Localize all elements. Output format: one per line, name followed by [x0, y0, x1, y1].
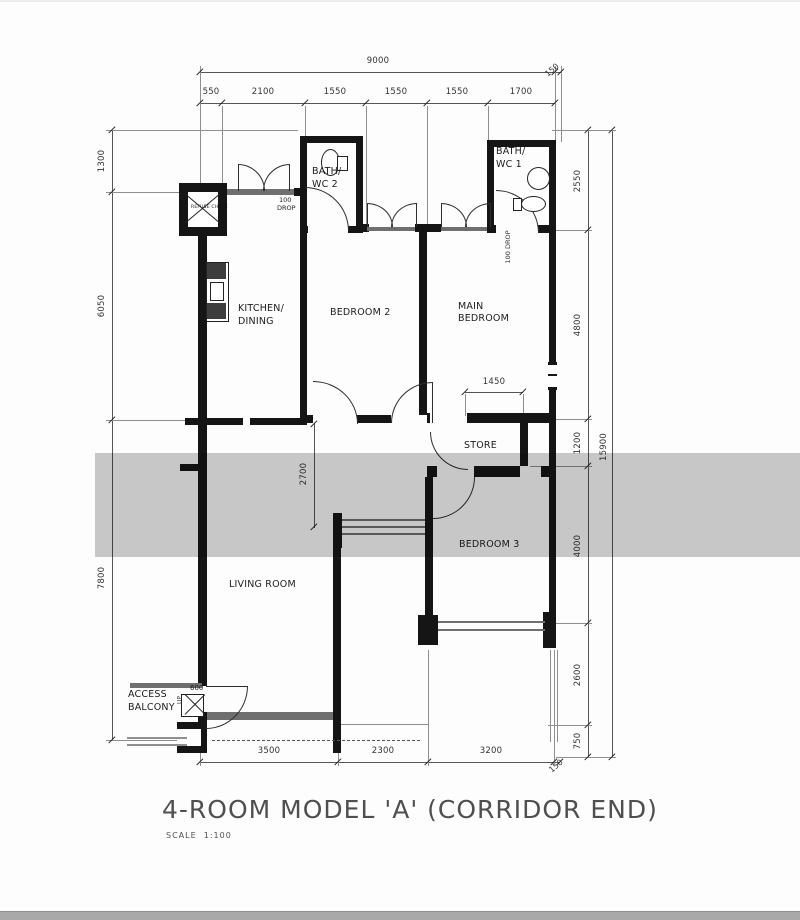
- window-line: [438, 621, 545, 623]
- wall: [418, 615, 438, 645]
- door-arc-main-bedroom: [391, 382, 433, 423]
- window-swing-arc: [263, 164, 290, 191]
- scale-value: 1:100: [204, 831, 232, 840]
- dim-ext-line: [200, 66, 201, 190]
- room-label-bedroom3: BEDROOM 3: [459, 539, 519, 550]
- wall: [425, 513, 433, 548]
- footer-bar: [0, 911, 800, 920]
- annotation-drop: 100: [279, 196, 291, 204]
- dim-label: 750: [573, 733, 583, 750]
- room-label-main-bedroom: BEDROOM: [458, 313, 509, 324]
- dim-line-top-total: [200, 72, 561, 73]
- room-label-access-balcony: ACCESS: [128, 689, 167, 700]
- window-sill: [548, 362, 557, 365]
- wall: [474, 466, 520, 477]
- floor-plan-sheet: 9000 550 2100 1550 1550 1550 1700 150 13…: [0, 0, 800, 920]
- door-arc-store: [430, 432, 468, 470]
- wall: [185, 418, 243, 425]
- dim-tick: [310, 523, 317, 530]
- wc-cistern: [513, 198, 522, 211]
- wall: [333, 548, 341, 753]
- window-line: [342, 519, 425, 521]
- window-strip: [367, 227, 415, 231]
- room-label-main-bedroom: MAIN: [458, 301, 483, 312]
- dim-line-bottom: [200, 762, 560, 763]
- dim-ext-line: [465, 394, 466, 416]
- door-arc-bedroom3: [433, 477, 475, 519]
- door-arc-bath2: [305, 187, 349, 231]
- scale-label: SCALE: [166, 831, 197, 840]
- wall: [549, 140, 556, 362]
- wall: [427, 466, 437, 477]
- dim-ext-line: [106, 192, 182, 193]
- dim-label: 550: [203, 87, 220, 97]
- wall: [467, 413, 553, 423]
- dim-label: 2600: [573, 664, 583, 686]
- window-line: [550, 650, 551, 742]
- dim-line-right-total: [612, 130, 613, 757]
- room-label-access-balcony: BALCONY: [128, 702, 175, 713]
- dim-label: 2100: [252, 87, 274, 97]
- wall: [198, 640, 207, 686]
- room-label-store: STORE: [464, 440, 497, 451]
- dim-ext-line: [305, 106, 306, 136]
- window-line: [342, 526, 425, 528]
- window-line: [342, 533, 425, 535]
- window-swing-arc: [238, 164, 265, 191]
- dim-line-left: [112, 130, 113, 740]
- dim-label: 1700: [510, 87, 532, 97]
- wall: [300, 415, 313, 423]
- dim-ext-line: [530, 466, 592, 467]
- wall: [300, 233, 307, 423]
- window-swing-arc: [465, 203, 491, 227]
- drawing-scale: SCALE 1:100: [166, 831, 232, 840]
- room-label-living: LIVING ROOM: [229, 579, 296, 590]
- room-label-bath-wc-1: WC 1: [496, 159, 522, 170]
- dim-label: 1200: [573, 432, 583, 454]
- kitchen-sink: [210, 282, 224, 301]
- annotation-drop: 100 DROP: [504, 230, 512, 263]
- dim-ext-line: [428, 650, 429, 766]
- annotation-entry-step: 600: [190, 684, 203, 692]
- dim-label: 1300: [97, 150, 107, 172]
- wall: [250, 418, 307, 425]
- room-label-bath-wc-2: BATH/: [312, 166, 341, 177]
- basin-fixture: [527, 167, 550, 190]
- window-strip: [441, 227, 489, 231]
- wall: [541, 466, 556, 477]
- window-sill: [548, 374, 557, 376]
- dim-line-top-segments: [200, 103, 556, 104]
- annotation-drop: DROP: [277, 204, 296, 212]
- dim-label-store-width: 1450: [483, 377, 505, 387]
- boundary-line: [341, 724, 428, 725]
- dim-label: 4800: [573, 314, 583, 336]
- wall: [549, 390, 556, 470]
- wall: [300, 136, 363, 143]
- dim-label: 1550: [324, 87, 346, 97]
- dim-label: 1550: [385, 87, 407, 97]
- dim-ext-line: [554, 650, 555, 766]
- dim-label-right-total: 15900: [599, 433, 609, 461]
- wall: [356, 143, 363, 233]
- balcony-line: [127, 744, 187, 746]
- dim-ext-line: [552, 130, 616, 131]
- wall: [198, 420, 207, 640]
- dim-ext-line: [427, 106, 428, 226]
- dim-label: 7800: [97, 567, 107, 589]
- wall: [520, 423, 528, 466]
- dim-label: 2550: [573, 170, 583, 192]
- drawing-title: 4-ROOM MODEL 'A' (CORRIDOR END): [162, 795, 658, 824]
- door-arc-bedroom2: [313, 381, 358, 424]
- window-swing-arc: [441, 203, 467, 227]
- room-label-kitchen: KITCHEN/: [238, 303, 284, 314]
- dim-ext-line: [488, 106, 489, 140]
- wc-fixture: [521, 196, 546, 212]
- wall: [294, 188, 301, 196]
- wall: [357, 415, 391, 423]
- dim-line-store-width: [465, 392, 523, 393]
- kitchen-counter-hatch: [207, 303, 226, 319]
- window-line: [557, 650, 558, 742]
- window-swing-arc: [367, 203, 393, 227]
- sheet-top-edge: [0, 0, 800, 2]
- window-line: [438, 629, 545, 631]
- dim-label: 3200: [480, 746, 502, 756]
- room-label-bedroom2: BEDROOM 2: [330, 307, 390, 318]
- balcony-line: [127, 737, 187, 739]
- wall: [180, 464, 198, 471]
- room-label-bath-wc-1: BATH/: [496, 146, 525, 157]
- dim-label: 3500: [258, 746, 280, 756]
- kitchen-counter-hatch: [207, 263, 226, 279]
- dim-line-living-depth: [314, 423, 315, 528]
- dim-label-top-total: 9000: [367, 56, 389, 66]
- dim-ext-line: [222, 106, 223, 190]
- dim-label: 6050: [97, 295, 107, 317]
- dim-label: 1550: [446, 87, 468, 97]
- room-label-bath-wc-2: WC 2: [312, 179, 338, 190]
- door-arc-entrance: [206, 686, 248, 729]
- dim-ext-line: [106, 130, 298, 131]
- dim-label-living-depth: 2700: [299, 463, 309, 485]
- room-label-kitchen: DINING: [238, 316, 274, 327]
- dim-label: 2300: [372, 746, 394, 756]
- dim-ext-line: [106, 740, 180, 741]
- annotation-up: UP: [177, 696, 184, 704]
- refuse-chute-label: REFUSE CHUTE: [191, 205, 228, 210]
- dim-line-right-segments: [588, 130, 589, 757]
- boundary-dash-line: [212, 740, 420, 741]
- window-swing-arc: [391, 203, 417, 227]
- dim-label: 4000: [573, 535, 583, 557]
- wall: [333, 513, 342, 548]
